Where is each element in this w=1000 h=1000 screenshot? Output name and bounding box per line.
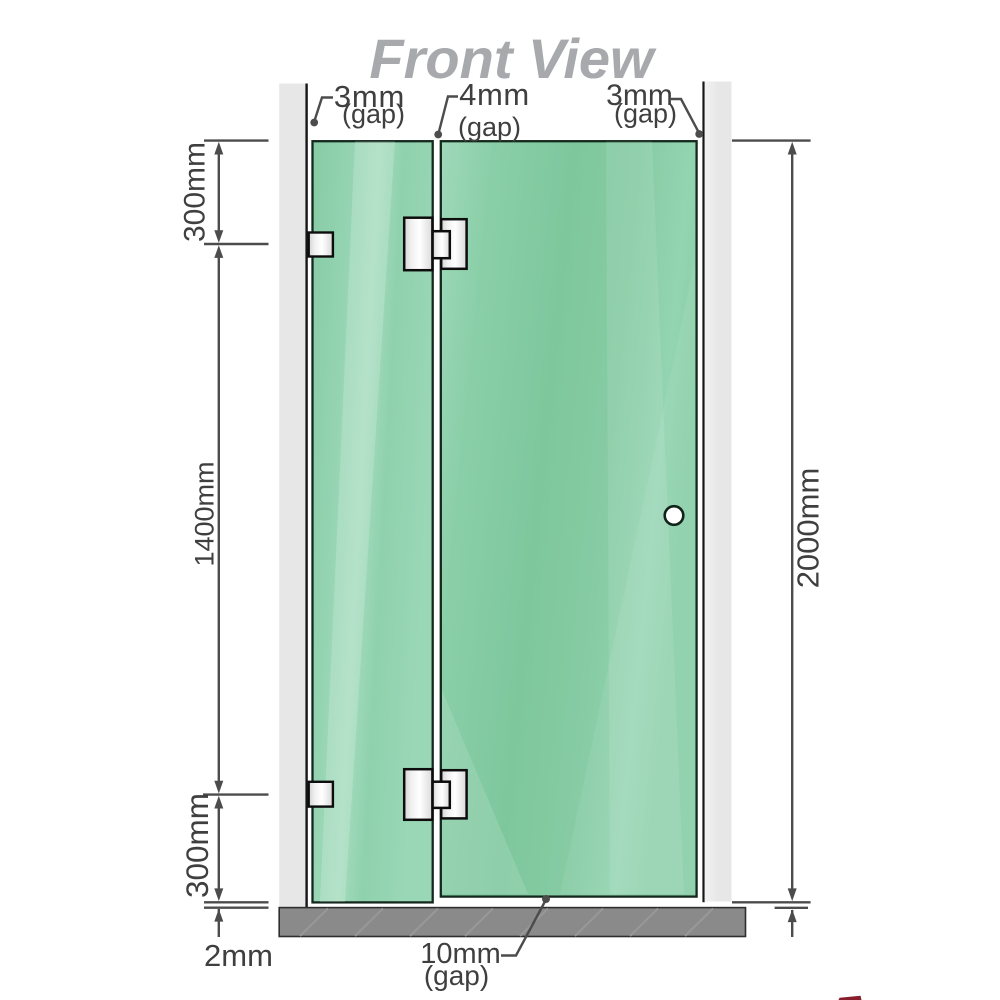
svg-text:(gap): (gap): [458, 112, 521, 142]
svg-text:4mm: 4mm: [459, 77, 530, 112]
svg-text:2mm: 2mm: [204, 938, 273, 973]
svg-text:300mm: 300mm: [179, 793, 215, 898]
svg-text:2000mm: 2000mm: [791, 468, 826, 589]
svg-text:(gap): (gap): [342, 99, 405, 129]
svg-text:(gap): (gap): [614, 99, 677, 129]
svg-text:300mm: 300mm: [178, 142, 211, 242]
svg-text:1400mm: 1400mm: [190, 461, 220, 566]
svg-text:(gap): (gap): [424, 960, 489, 991]
